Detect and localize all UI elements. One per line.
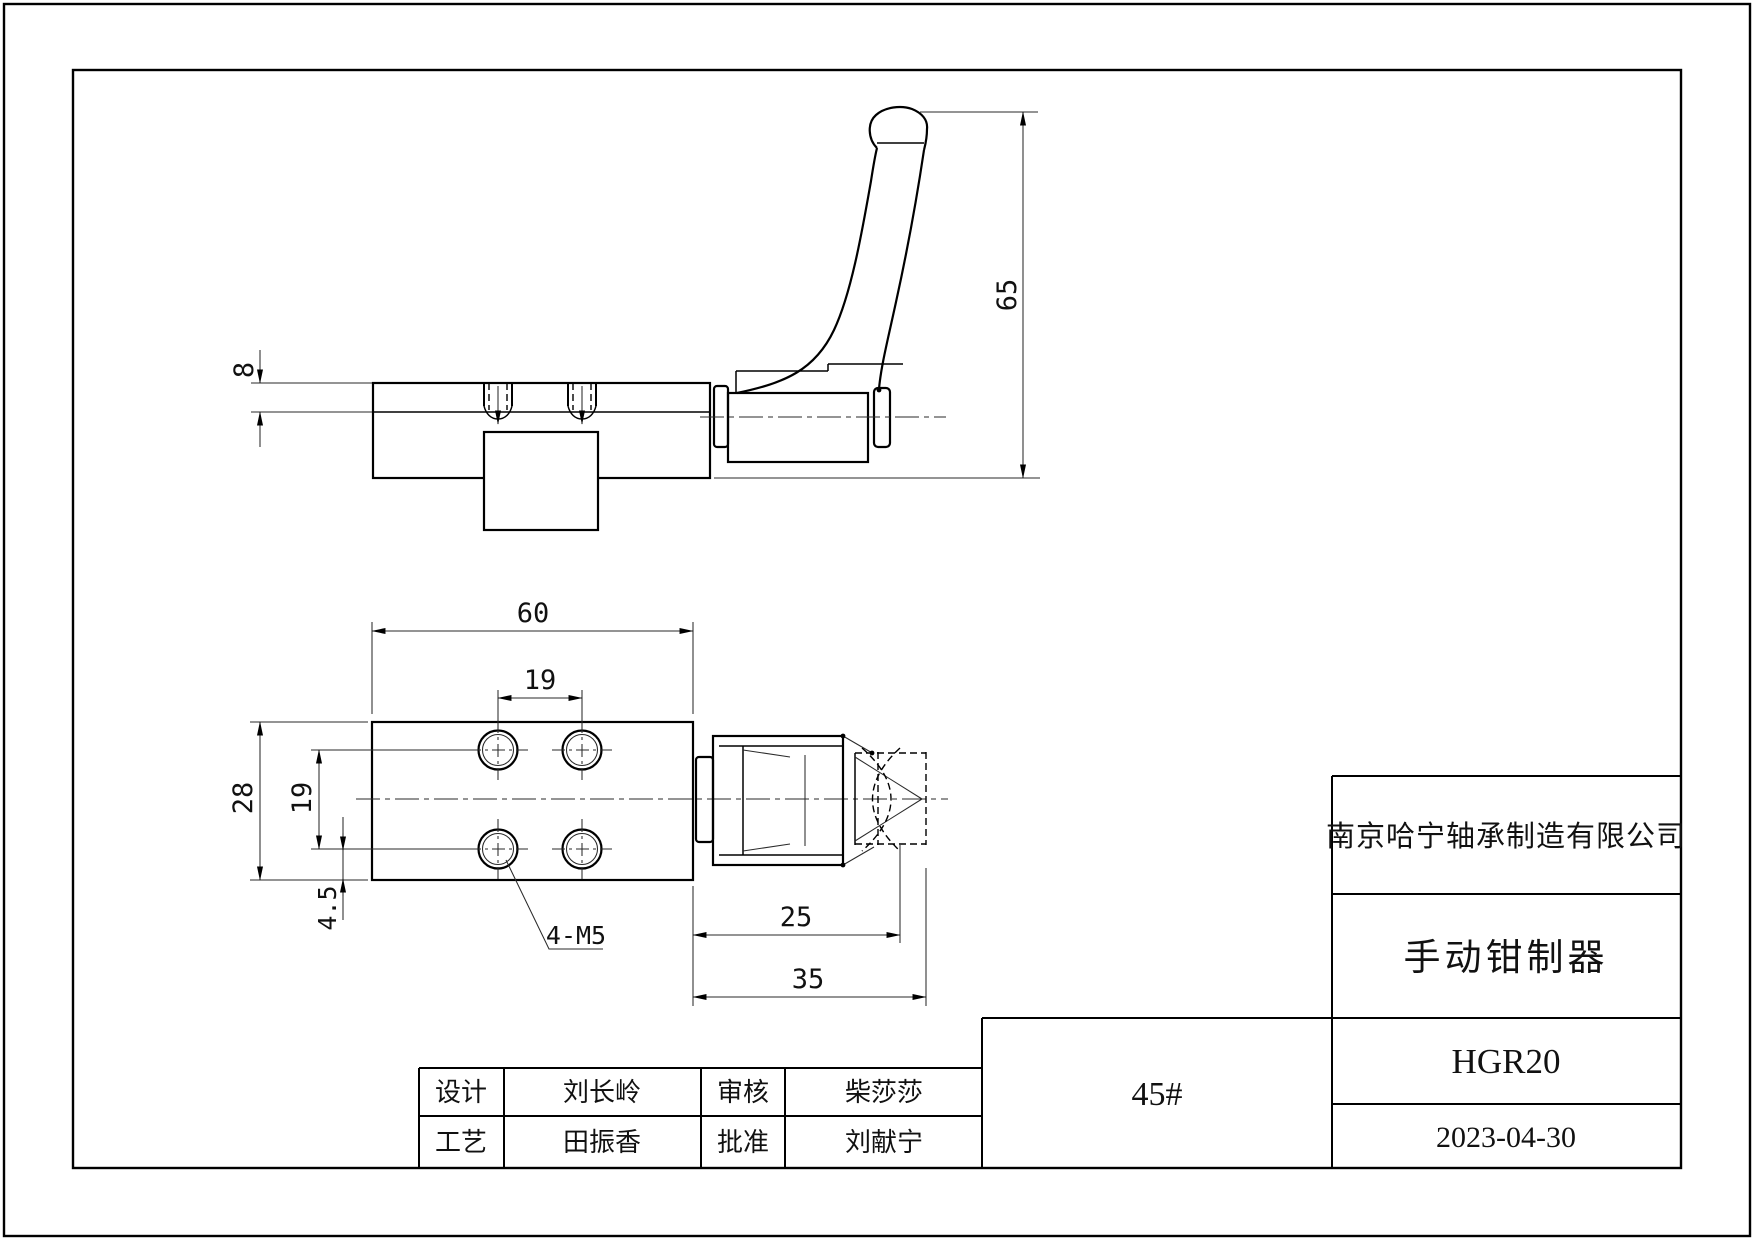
process-name: 田振香 bbox=[563, 1128, 641, 1158]
tapped-hole-plan bbox=[552, 819, 612, 879]
dim-total-height: 65 bbox=[992, 279, 1023, 312]
drawing-date: 2023-04-30 bbox=[1436, 1121, 1576, 1154]
review-label: 审核 bbox=[717, 1078, 769, 1108]
approve-name: 刘献宁 bbox=[845, 1128, 923, 1158]
company-name: 南京哈宁轴承制造有限公司 bbox=[1326, 819, 1686, 853]
rail-block-plan bbox=[372, 722, 693, 880]
tapped-hole-plan bbox=[468, 720, 528, 780]
dim-body-length: 25 bbox=[780, 902, 813, 933]
plan-view: 60 19 28 19 4.5 bbox=[228, 598, 948, 1006]
dim-thread-callout: 4-M5 bbox=[546, 921, 606, 950]
dim-block-depth: 28 bbox=[228, 782, 259, 815]
review-name: 柴莎莎 bbox=[845, 1078, 923, 1108]
dim-block-width: 60 bbox=[517, 598, 550, 629]
engineering-drawing-canvas: 8 bbox=[0, 0, 1754, 1240]
clamp-lever bbox=[737, 107, 927, 393]
approve-label: 批准 bbox=[717, 1128, 769, 1158]
clamp-body-side bbox=[728, 393, 868, 462]
material-spec: 45# bbox=[1132, 1076, 1183, 1113]
tapped-hole-side bbox=[484, 383, 512, 424]
side-view: 8 bbox=[229, 107, 1040, 530]
tapped-hole-side bbox=[568, 383, 596, 424]
clamp-head-plan bbox=[696, 734, 926, 868]
drawing-sheet: 8 bbox=[0, 0, 1754, 1240]
process-label: 工艺 bbox=[435, 1128, 487, 1158]
design-label: 设计 bbox=[435, 1078, 487, 1108]
tapped-hole-plan bbox=[468, 819, 528, 879]
rail-tongue bbox=[484, 432, 598, 530]
tapped-hole-plan bbox=[552, 720, 612, 780]
dim-hole-spacing-y: 19 bbox=[287, 782, 318, 815]
approval-table-text: 设计 刘长岭 审核 柴莎莎 工艺 田振香 批准 刘献宁 bbox=[435, 1078, 923, 1158]
design-name: 刘长岭 bbox=[563, 1078, 641, 1108]
dim-total-length: 35 bbox=[792, 964, 825, 995]
dim-hole-spacing-x: 19 bbox=[524, 665, 557, 696]
model-number: HGR20 bbox=[1452, 1042, 1561, 1081]
dim-edge-offset: 4.5 bbox=[313, 885, 342, 930]
dim-rail-height: 8 bbox=[229, 362, 260, 378]
product-name: 手动钳制器 bbox=[1404, 936, 1609, 979]
